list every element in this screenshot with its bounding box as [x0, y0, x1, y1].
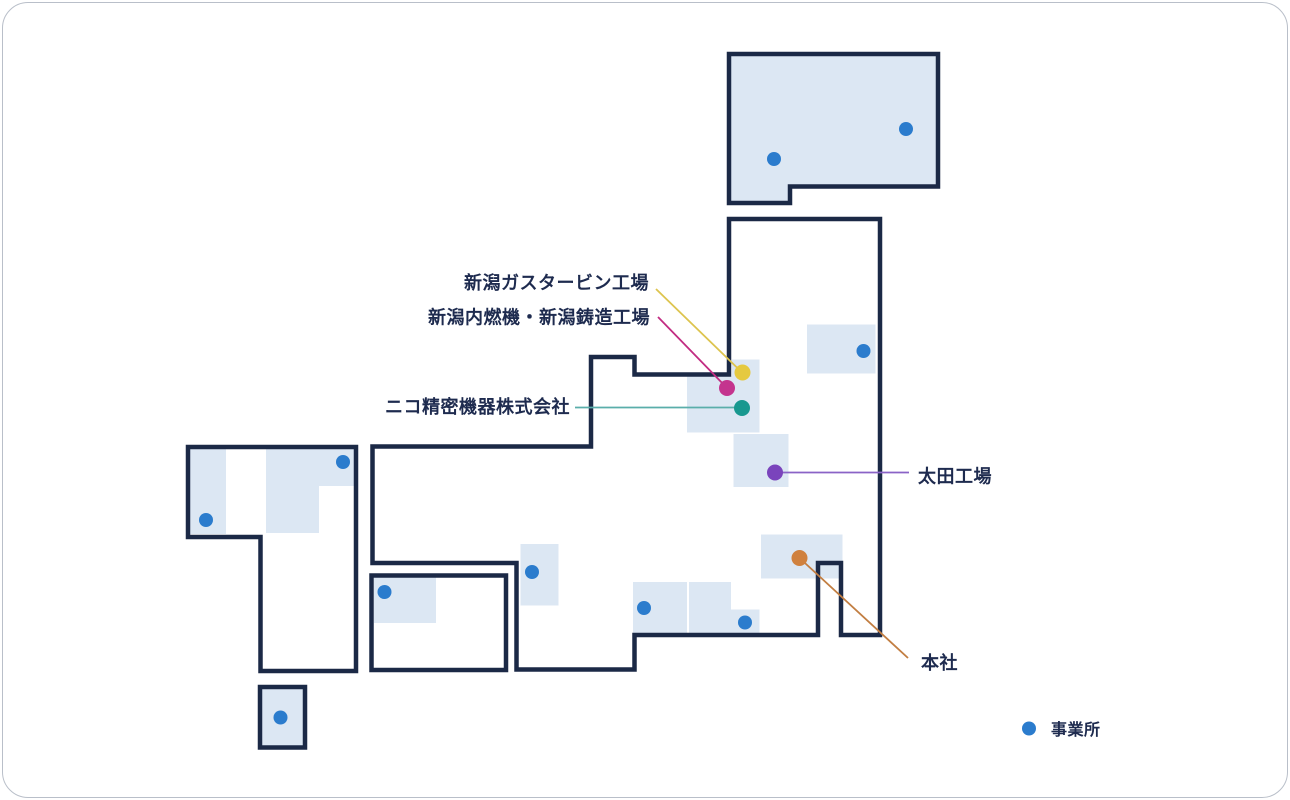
office-dot: [637, 601, 651, 615]
region-highlight: [734, 434, 789, 487]
label-niigata-gas-turbine-plant: 新潟ガスタービン工場: [464, 272, 649, 293]
niko-precision-dot: [734, 400, 750, 416]
legend-office-dot-icon: [1022, 722, 1036, 736]
office-dot: [767, 152, 781, 166]
ota-plant-dot: [767, 465, 783, 481]
legend: 事業所: [1022, 720, 1101, 739]
head-office-dot: [792, 550, 808, 566]
office-dot: [274, 711, 288, 725]
niigata-gas-turbine-plant-dot: [735, 365, 751, 381]
label-head-office: 本社: [921, 652, 958, 673]
office-dot: [336, 455, 350, 469]
office-dot: [738, 616, 752, 630]
japan-map-svg: 新潟ガスタービン工場 新潟内燃機・新潟鋳造工場 ニコ精密機器株式会社 太田工場 …: [2, 2, 1288, 798]
office-dot: [899, 122, 913, 136]
office-dot: [199, 513, 213, 527]
map-card: 新潟ガスタービン工場 新潟内燃機・新潟鋳造工場 ニコ精密機器株式会社 太田工場 …: [2, 2, 1288, 798]
legend-label: 事業所: [1051, 720, 1101, 739]
office-dot: [378, 585, 392, 599]
region-highlight: [266, 447, 319, 533]
label-niko-precision: ニコ精密機器株式会社: [385, 396, 570, 417]
label-ota-plant: 太田工場: [918, 466, 992, 487]
office-dot: [525, 565, 539, 579]
label-niigata-engine-casting-plant: 新潟内燃機・新潟鋳造工場: [428, 307, 650, 328]
niigata-engine-casting-plant-dot: [719, 380, 735, 396]
region-highlight: [374, 577, 436, 623]
office-dot: [857, 344, 871, 358]
region-highlight: [689, 582, 731, 634]
